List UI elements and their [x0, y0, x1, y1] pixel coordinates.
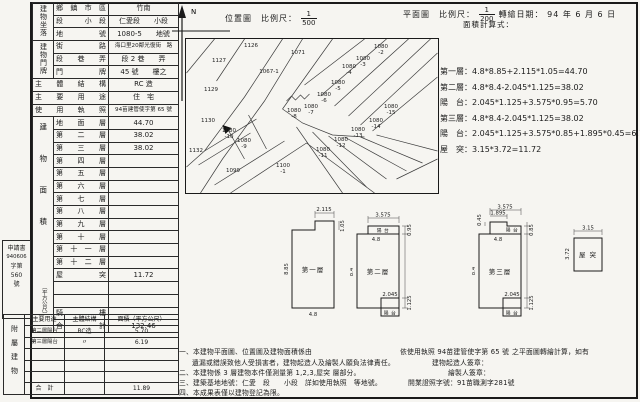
- table-row: 第十一層: [33, 244, 179, 257]
- table-row: 第二層陽台RC造5.70: [4, 326, 179, 337]
- dim-label: 0.95: [407, 224, 413, 236]
- dim-label: 2.115: [316, 207, 331, 213]
- scale-fraction: 1500: [301, 10, 317, 27]
- dim-label: 4.8: [309, 312, 318, 318]
- parcel-label: 1130: [199, 119, 217, 125]
- dim-label: 0.45: [477, 214, 483, 226]
- dim-label: 1.895: [490, 211, 505, 217]
- parcel-label: 1100 -1: [274, 164, 292, 176]
- table-row: 建物坐落 鄉鎮市區竹南: [33, 3, 179, 16]
- table-row: 第 四 層: [33, 155, 179, 168]
- parcel-label: 1129: [202, 88, 220, 94]
- table-row: 第 二 層38.02: [33, 129, 179, 142]
- license-number: 開業證照字號：91苗職測字281號: [408, 377, 515, 387]
- builder-signature-label: 建物起造人簽章：: [432, 357, 488, 367]
- table-row: 合 計11.89: [4, 383, 179, 394]
- table-row: 門 牌45 號 樓之: [33, 66, 179, 79]
- parcel-label: 1080 -7: [302, 105, 320, 117]
- floor-plan-first: 2.115 1.05 8.85 4.8 第一層: [284, 206, 354, 325]
- area-calc-label: 面積計算式：: [463, 19, 514, 30]
- formula-line: 屋 突：3.15*3.72=11.72: [440, 142, 640, 158]
- balcony-label: 陽 台: [506, 310, 519, 317]
- group-label: 建物坐落: [33, 3, 54, 41]
- parcel-label: 1126: [242, 44, 260, 50]
- parcel-label: 1080 -12: [332, 138, 350, 150]
- table-row: 第 十 層: [33, 231, 179, 244]
- plan-label: 屋 突: [579, 250, 597, 259]
- table-row: 第 七 層: [33, 193, 179, 206]
- note-line-1c: 之平面圖轉繪計算，如有: [512, 346, 589, 356]
- table-row: [33, 294, 179, 307]
- site-location-map: 1126 1127 1071 1067-1 1129 1080 -2 1080 …: [185, 38, 439, 194]
- parcel-label: 1080 -2: [372, 45, 390, 57]
- note-license-ref: 依使用執照 94苗建管使字第 65 號: [400, 346, 509, 356]
- dim-label: 1.05: [340, 220, 346, 232]
- trace-date-label: 轉繪日期：: [499, 10, 544, 19]
- formula-line: 陽 台：2.045*1.125+3.575*0.85+1.895*0.45=6.…: [440, 126, 640, 142]
- floor-plan-third: 3.575 1.895 0.45 陽 台 4.8 0.85 1.125 2.04…: [472, 204, 560, 328]
- dim-label: 8.85: [284, 263, 290, 275]
- stamp-line: 字第: [3, 262, 30, 271]
- parcel-label: 1080 -5: [329, 81, 347, 93]
- dim-label: 3.72: [565, 248, 571, 260]
- note-line-1: 一、本建物平面圖、位置圖及建物面積係由: [179, 346, 312, 356]
- dim-label: 2.045: [504, 292, 519, 298]
- parcel-label: 1127: [210, 59, 228, 65]
- table-row: [4, 371, 179, 382]
- dim-label: 8.4: [472, 266, 477, 275]
- building-info-table: 建物坐落 鄉鎮市區竹南 段 小段仁愛段 小段 地 號1080-5 地號 建物門牌…: [32, 2, 179, 333]
- stamp-line: 940606: [3, 253, 30, 261]
- table-row: 段 小段仁愛段 小段: [33, 15, 179, 28]
- dim-label: 1.125: [529, 295, 535, 310]
- floor-plan-second: 3.575 陽 台 4.8 0.95 1.125 2.045 陽 台 8.4 第…: [350, 212, 430, 328]
- dim-label: 1.125: [407, 295, 413, 310]
- attached-building-table: 附屬建物 主要用途主體結構面積（平方公尺） 第二層陽台RC造5.70 第三層陽台…: [3, 314, 179, 395]
- table-row: 地 號1080-5 地號: [33, 28, 179, 41]
- table-row: 主要用途住 宅: [33, 91, 179, 104]
- scanned-building-survey-document: { "stamp": {"line1":"申請書","line2":"94060…: [0, 0, 640, 402]
- table-row: 第 九 層: [33, 218, 179, 231]
- parcel-label: 1080 -11: [314, 148, 332, 160]
- group-label: 建物門牌: [33, 41, 54, 79]
- note-line-4: 三、建築基地地號：仁愛 段 小段 詳如使用執照 等地號。: [179, 377, 382, 387]
- table-row: 第 三 層38.02: [33, 142, 179, 155]
- dim-label: 8.4: [350, 267, 355, 276]
- note-line-5: 四、本成果表僅以建物登記為限。: [179, 387, 284, 397]
- parcel-label: 1080 -13: [349, 128, 367, 140]
- dim-label: 3.15: [582, 226, 594, 232]
- dim-label: 4.8: [372, 237, 381, 243]
- table-row: 屋 突11.72: [33, 269, 179, 282]
- table-row: 第十二層: [33, 256, 179, 269]
- drafter-signature-label: 繪製人簽章：: [448, 367, 490, 377]
- site-plan-title: 位置圖 比例尺： 1500: [225, 10, 317, 27]
- parcel-label: 1071: [289, 51, 307, 57]
- table-row: [33, 282, 179, 295]
- balcony-label: 陽 台: [384, 310, 397, 317]
- parcel-label: 1080 -14: [367, 119, 385, 131]
- note-line-2: 遺漏或錯誤致他人受損害者，建物起造人及繪製人願負法律責任。: [192, 357, 395, 367]
- table-row: 主體結構RC 造: [33, 79, 179, 92]
- formula-line: 第二層：4.8*8.4-2.045*1.125=38.02: [440, 80, 640, 96]
- group-label: 附屬建物: [4, 315, 25, 395]
- balcony-label: 陽 台: [377, 227, 390, 234]
- parcel-label: 1132: [187, 149, 205, 155]
- stamp-line: 申請書: [3, 244, 30, 253]
- plan-label: 第二層: [367, 267, 390, 276]
- table-row: 附屬建物 主要用途主體結構面積（平方公尺）: [4, 315, 179, 326]
- note-line-3: 二、本建物係 3 層建物本件僅測量第 1,2,3,屋突 層部分。: [179, 367, 361, 377]
- table-row: 建物面積（平方公尺） 地 面 層44.70: [33, 117, 179, 130]
- parcel-label: 1099: [224, 169, 242, 175]
- table-row: 建物門牌 街 路海口里20鄰光復街 路: [33, 41, 179, 54]
- table-row: 第 五 層: [33, 167, 179, 180]
- svg-text:N: N: [191, 8, 196, 16]
- dim-label: 4.8: [494, 237, 503, 243]
- parcel-label: 1080 -9: [235, 139, 253, 151]
- trace-date: 94 年 6 月 6 日: [547, 10, 616, 19]
- parcel-label: 1080 -6: [315, 93, 333, 105]
- dim-label: 2.045: [382, 292, 397, 298]
- parcel-label: 1080 -8: [285, 109, 303, 121]
- balcony-label: 陽 台: [506, 227, 519, 234]
- dim-label: 3.575: [375, 213, 390, 219]
- parcel-label: 1080 -15: [382, 105, 400, 117]
- table-row: 第 八 層: [33, 206, 179, 219]
- plan-label: 第一層: [302, 265, 325, 274]
- formula-line: 第三層：4.8*8.4-2.045*1.125=38.02: [440, 111, 640, 127]
- plan-label: 第三層: [489, 267, 512, 276]
- formula-line: 第一層：4.8*8.85+2.115*1.05=44.70: [440, 64, 640, 80]
- parcel-label: 1080 -4: [340, 65, 358, 77]
- table-row: 第 六 層: [33, 180, 179, 193]
- stamp-line: 號: [3, 280, 30, 289]
- table-row: 第三層陽台〃6.19: [4, 337, 179, 348]
- dim-label: 0.85: [529, 224, 535, 236]
- table-row: 使用執照94苗建管使字第 65 號: [33, 104, 179, 117]
- formula-line: 陽 台：2.045*1.125+3.575*0.95=5.70: [440, 95, 640, 111]
- table-row: [4, 360, 179, 371]
- application-number-stamp: 申請書 940606 字第 560 號: [2, 240, 31, 319]
- table-row: [4, 349, 179, 360]
- parcel-label: 1067-1: [256, 70, 282, 76]
- stamp-line: 560: [3, 271, 30, 280]
- area-calculation-formulas: 第一層：4.8*8.85+2.115*1.05=44.70 第二層：4.8*8.…: [440, 64, 640, 157]
- floor-plan-roof: 3.15 3.72 屋 突: [562, 224, 618, 288]
- table-row: 段 巷 弄段 2 巷 弄: [33, 53, 179, 66]
- area-group-label: 建物面積（平方公尺）: [33, 117, 54, 333]
